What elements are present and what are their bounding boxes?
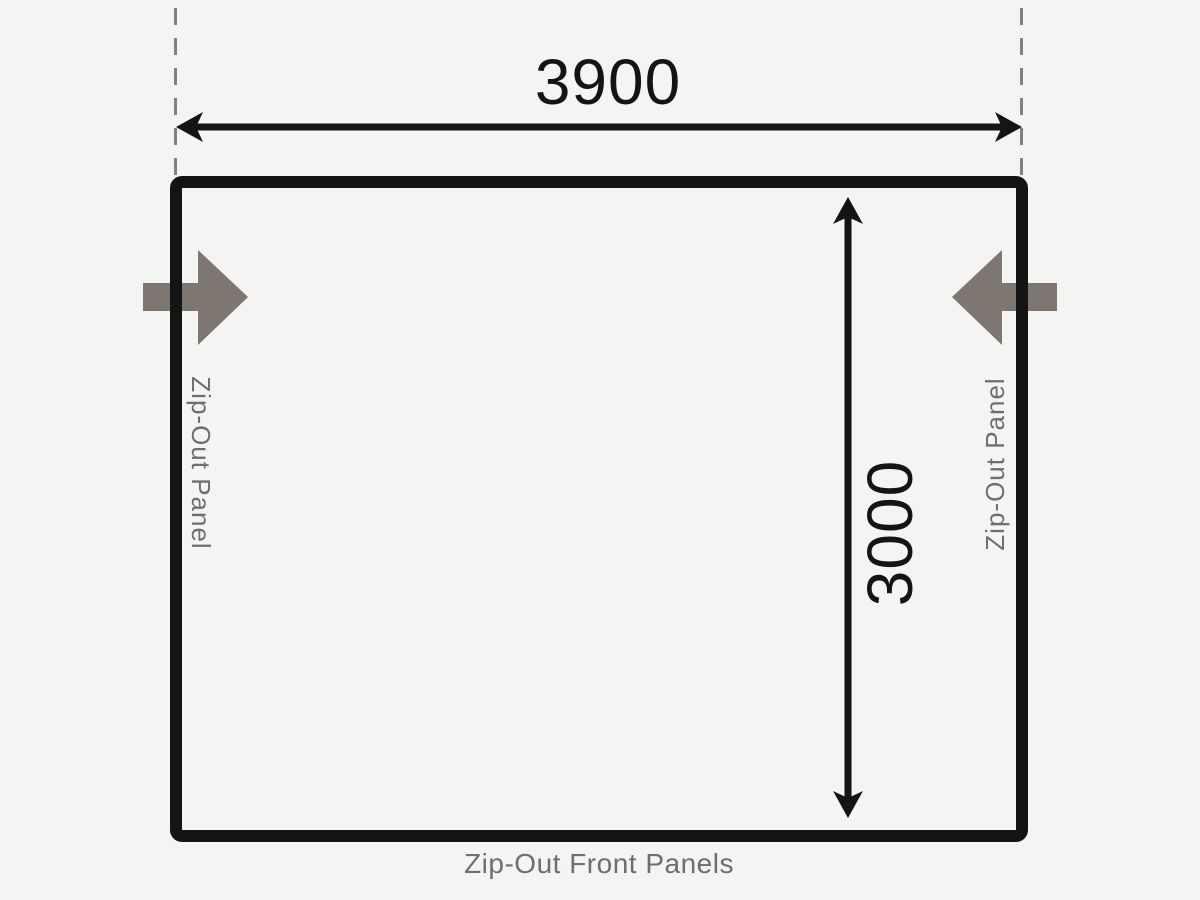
right-extension-dashed-line [1020, 8, 1023, 178]
zip-out-front-panels-label: Zip-Out Front Panels [464, 848, 734, 880]
right-zip-out-panel-label: Zip-Out Panel [982, 377, 1008, 550]
width-dimension-label: 3900 [535, 50, 681, 114]
floorplan-diagram: 3900 3000 Zip-Out Panel Zip-Out Panel Zi… [0, 0, 1200, 900]
left-zip-out-panel-label: Zip-Out Panel [188, 376, 214, 549]
left-extension-dashed-line [174, 8, 177, 178]
height-dimension-label: 3000 [858, 460, 922, 606]
